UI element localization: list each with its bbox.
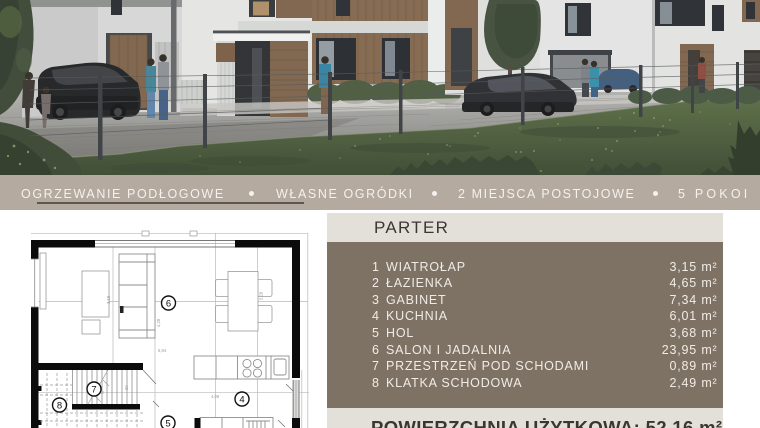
svg-text:6: 6 xyxy=(166,299,171,310)
svg-text:8: 8 xyxy=(57,401,62,412)
svg-text:4,28: 4,28 xyxy=(156,318,161,327)
svg-text:3,18: 3,18 xyxy=(106,295,111,304)
svg-text:4: 4 xyxy=(239,395,244,406)
svg-text:7: 7 xyxy=(91,385,96,396)
svg-text:4,09: 4,09 xyxy=(211,394,220,399)
svg-text:5: 5 xyxy=(165,419,170,428)
svg-text:90: 90 xyxy=(124,385,129,390)
svg-text:5,28: 5,28 xyxy=(259,291,264,300)
svg-text:6,94: 6,94 xyxy=(158,348,167,353)
